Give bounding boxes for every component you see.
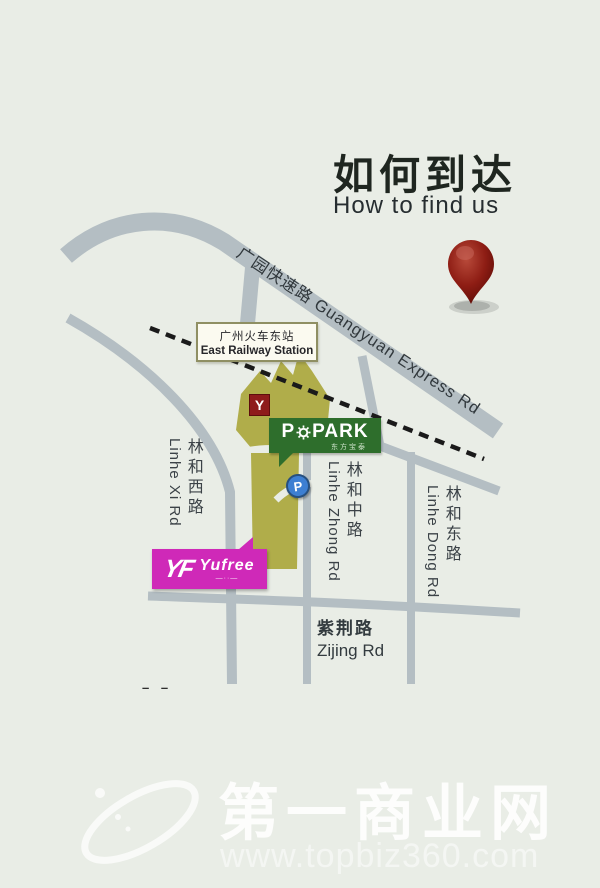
popark-callout-tail (279, 452, 294, 467)
watermark-site-url: www.topbiz360.com (220, 837, 539, 876)
road-label-zijing: 紫荆路 Zijing Rd (317, 614, 384, 661)
road-label-linhe-zhong: 林和中路 Linhe Zhong Rd (323, 461, 362, 582)
road-linhe-xi (68, 318, 232, 684)
zijing-cn: 紫荆路 (317, 614, 384, 639)
orbit-logo-icon (70, 765, 210, 880)
yufree-logo-mark: YF (161, 555, 195, 584)
road-label-linhe-dong: 林和东路 Linhe Dong Rd (422, 485, 461, 598)
linhe-zhong-cn: 林和中路 (342, 461, 362, 582)
station-label-box: 广州火车东站 East Railway Station (196, 322, 318, 362)
y-badge-letter: Y (255, 397, 264, 413)
yufree-logo-name: Yufree (199, 557, 254, 575)
yufree-callout-tail (238, 537, 253, 550)
popark-logo: P PARK (269, 418, 381, 443)
station-label-cn: 广州火车东站 (200, 328, 314, 344)
y-landmark-badge: Y (249, 394, 270, 416)
popark-callout: P PARK 东方宝泰 (269, 418, 381, 453)
watermark: 第一商业网 www.topbiz360.com (0, 755, 600, 888)
linhe-dong-en: Linhe Dong Rd (422, 485, 441, 598)
linhe-zhong-en: Linhe Zhong Rd (323, 461, 342, 582)
parking-letter: P (293, 478, 304, 494)
find-us-map-page: 如何到达 How to find us 广园快速路 Guangyuan Expr… (0, 0, 600, 888)
yufree-callout: YF Yufree —··— (152, 549, 267, 589)
station-label-en: East Railway Station (200, 345, 314, 357)
linhe-xi-en: Linhe Xi Rd (164, 438, 183, 527)
yufree-tagline: —··— (216, 575, 239, 582)
gear-icon (296, 425, 311, 440)
popark-logo-park: PARK (312, 421, 368, 443)
popark-logo-p: P (281, 421, 295, 443)
location-pin-icon (438, 234, 508, 318)
linhe-dong-cn: 林和东路 (441, 485, 461, 598)
road-zijing (148, 596, 520, 613)
popark-subtitle: 东方宝泰 (269, 442, 381, 452)
linhe-xi-cn: 林和西路 (183, 438, 203, 527)
zijing-en: Zijing Rd (317, 641, 384, 661)
road-label-linhe-xi: 林和西路 Linhe Xi Rd (164, 438, 203, 527)
map-edge-marks: – – (142, 680, 172, 695)
